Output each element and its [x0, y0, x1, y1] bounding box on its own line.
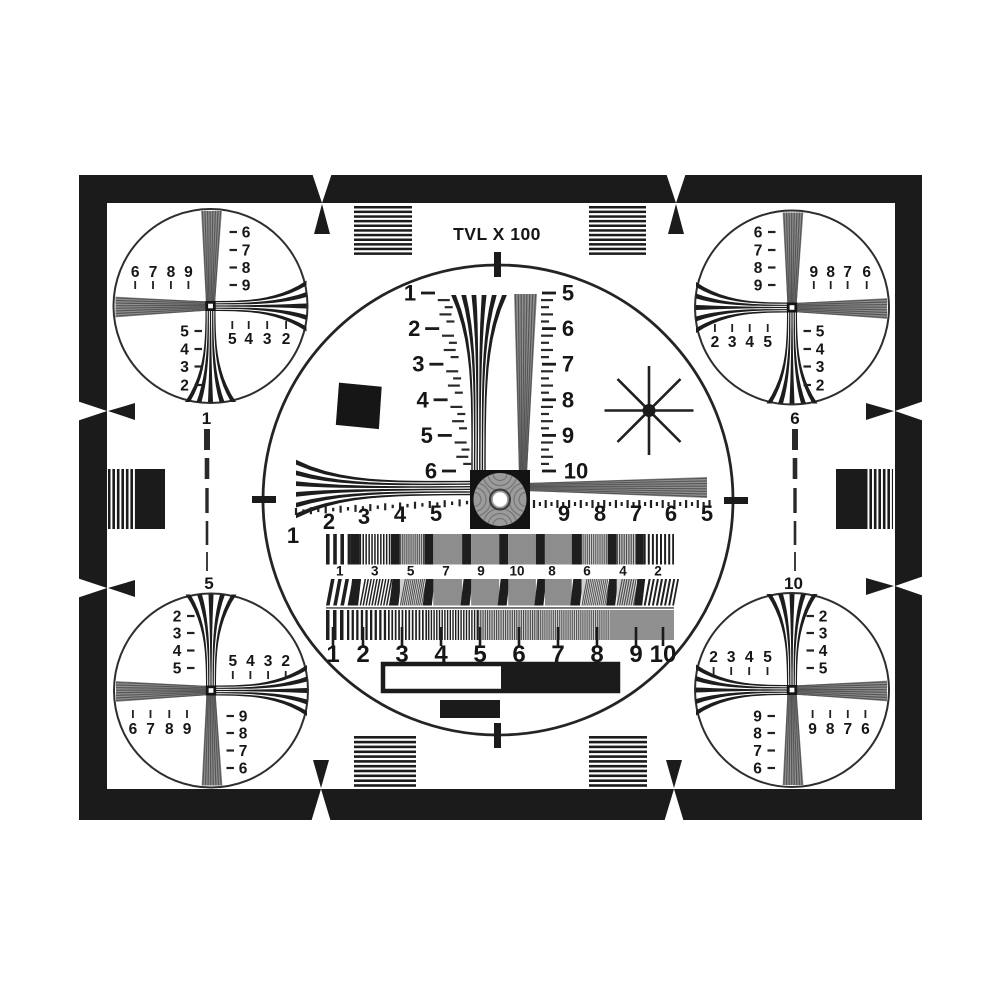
svg-text:7: 7	[239, 743, 248, 760]
svg-text:3: 3	[358, 504, 370, 529]
svg-text:8: 8	[753, 726, 762, 743]
svg-text:4: 4	[246, 653, 255, 670]
svg-text:9: 9	[629, 641, 642, 668]
svg-text:5: 5	[228, 331, 237, 348]
svg-text:9: 9	[809, 264, 818, 281]
svg-text:8: 8	[826, 264, 835, 281]
svg-text:3: 3	[173, 626, 182, 643]
svg-text:6: 6	[753, 761, 762, 778]
svg-text:8: 8	[548, 564, 556, 579]
svg-text:9: 9	[754, 278, 763, 295]
svg-text:4: 4	[819, 643, 828, 660]
svg-text:3: 3	[728, 334, 737, 351]
svg-text:6: 6	[242, 225, 251, 242]
svg-text:5: 5	[816, 324, 825, 341]
svg-text:5: 5	[204, 574, 213, 593]
svg-text:2: 2	[709, 649, 718, 666]
svg-text:2: 2	[654, 564, 662, 579]
svg-text:4: 4	[745, 649, 754, 666]
svg-text:9: 9	[184, 264, 193, 281]
svg-text:9: 9	[562, 423, 574, 448]
svg-text:6: 6	[562, 316, 574, 341]
svg-text:6: 6	[239, 761, 248, 778]
svg-text:3: 3	[816, 359, 825, 376]
svg-text:7: 7	[146, 721, 155, 738]
svg-text:6: 6	[583, 564, 591, 579]
svg-text:6: 6	[862, 264, 871, 281]
svg-text:6: 6	[861, 721, 870, 738]
svg-text:10: 10	[784, 574, 803, 593]
svg-text:8: 8	[167, 264, 176, 281]
svg-text:3: 3	[727, 649, 736, 666]
svg-text:7: 7	[630, 501, 642, 526]
svg-text:5: 5	[763, 334, 772, 351]
svg-text:9: 9	[808, 721, 817, 738]
svg-text:10: 10	[509, 564, 524, 579]
svg-text:3: 3	[371, 564, 379, 579]
svg-text:9: 9	[558, 501, 570, 526]
svg-text:5: 5	[421, 423, 433, 448]
svg-text:10: 10	[650, 641, 677, 668]
svg-text:1: 1	[326, 641, 339, 668]
svg-text:2: 2	[173, 609, 182, 626]
svg-text:2: 2	[282, 331, 291, 348]
svg-text:10: 10	[564, 459, 588, 484]
svg-text:5: 5	[562, 281, 574, 306]
svg-text:9: 9	[477, 564, 485, 579]
svg-text:7: 7	[843, 721, 852, 738]
svg-text:7: 7	[149, 264, 158, 281]
svg-text:8: 8	[826, 721, 835, 738]
svg-text:9: 9	[183, 721, 192, 738]
svg-text:3: 3	[264, 653, 273, 670]
svg-text:8: 8	[562, 387, 574, 412]
svg-text:3: 3	[180, 359, 189, 376]
svg-text:3: 3	[819, 626, 828, 643]
svg-text:8: 8	[165, 721, 174, 738]
svg-text:3: 3	[412, 352, 424, 377]
svg-text:5: 5	[819, 661, 828, 678]
svg-text:4: 4	[173, 643, 182, 660]
svg-text:7: 7	[754, 243, 763, 260]
svg-text:6: 6	[425, 459, 437, 484]
svg-text:4: 4	[244, 331, 253, 348]
svg-text:5: 5	[407, 564, 415, 579]
svg-text:2: 2	[323, 509, 335, 534]
svg-text:2: 2	[819, 609, 828, 626]
svg-text:4: 4	[745, 334, 754, 351]
svg-text:6: 6	[754, 225, 763, 242]
svg-text:7: 7	[753, 743, 762, 760]
svg-text:8: 8	[754, 260, 763, 277]
svg-text:2: 2	[180, 378, 189, 395]
svg-text:6: 6	[790, 409, 799, 428]
svg-text:2: 2	[816, 378, 825, 395]
svg-text:7: 7	[843, 264, 852, 281]
svg-text:4: 4	[619, 564, 627, 579]
svg-text:1: 1	[404, 281, 416, 306]
svg-text:9: 9	[239, 709, 248, 726]
svg-text:9: 9	[753, 709, 762, 726]
svg-text:1: 1	[336, 564, 344, 579]
svg-text:2: 2	[281, 653, 290, 670]
svg-text:4: 4	[394, 502, 407, 527]
svg-text:2: 2	[711, 334, 720, 351]
svg-text:1: 1	[287, 523, 299, 548]
svg-text:6: 6	[665, 501, 677, 526]
svg-text:5: 5	[763, 649, 772, 666]
svg-text:TVL X 100: TVL X 100	[453, 224, 541, 244]
svg-text:6: 6	[129, 721, 138, 738]
svg-text:8: 8	[242, 260, 251, 277]
svg-text:4: 4	[416, 387, 429, 412]
svg-text:8: 8	[239, 726, 248, 743]
svg-text:3: 3	[263, 331, 272, 348]
svg-text:4: 4	[180, 342, 189, 359]
svg-text:7: 7	[242, 243, 251, 260]
svg-text:5: 5	[228, 653, 237, 670]
svg-text:2: 2	[356, 641, 369, 668]
svg-text:5: 5	[173, 661, 182, 678]
svg-text:5: 5	[430, 501, 442, 526]
svg-text:2: 2	[408, 316, 420, 341]
svg-text:1: 1	[202, 409, 211, 428]
svg-text:4: 4	[816, 342, 825, 359]
svg-text:9: 9	[242, 278, 251, 295]
svg-text:5: 5	[701, 501, 713, 526]
svg-text:6: 6	[131, 264, 140, 281]
svg-text:7: 7	[442, 564, 450, 579]
svg-text:5: 5	[180, 324, 189, 341]
svg-text:7: 7	[562, 352, 574, 377]
svg-text:8: 8	[594, 501, 606, 526]
